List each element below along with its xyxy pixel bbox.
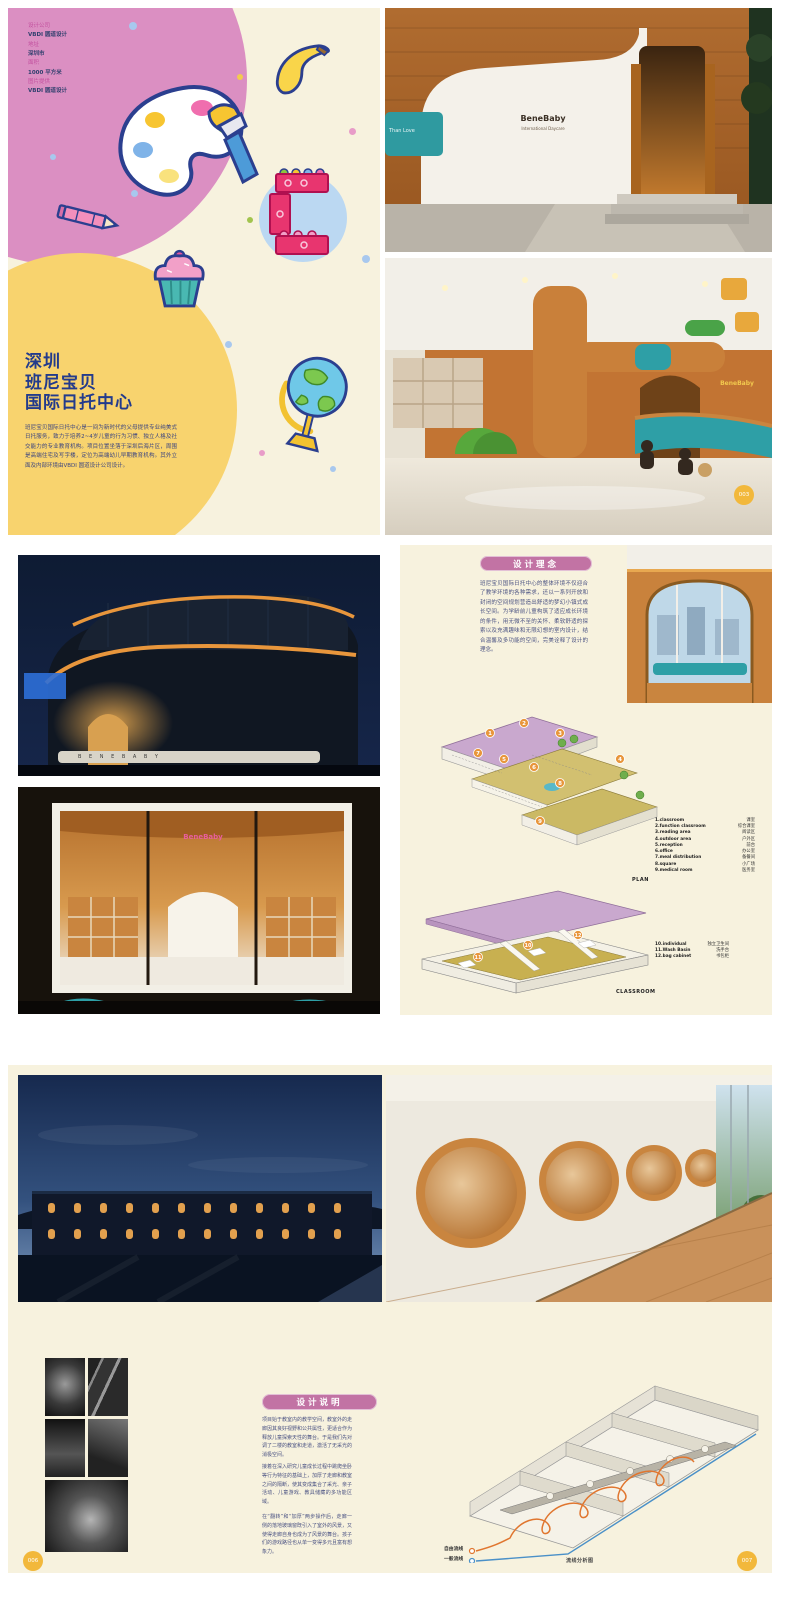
classroom-marker: 12	[575, 933, 582, 939]
night-exterior-illustration	[18, 555, 380, 776]
plan-marker: 6	[532, 765, 536, 771]
plan-marker: 1	[488, 731, 492, 737]
benebaby-wall-logo: BeneBaby	[707, 380, 767, 387]
blue-dot	[50, 154, 56, 160]
info-value: VBDI 圆道设计	[28, 87, 67, 96]
blue-dot	[330, 466, 336, 472]
blue-dot	[129, 22, 137, 30]
legend-en: 12.bag cabinet	[655, 954, 691, 960]
flow-legend-free: 自由流线	[444, 1548, 463, 1553]
plan-marker: 9	[538, 819, 542, 825]
classroom-marker: 10	[525, 943, 532, 949]
teal-wall-sign: Than Love	[389, 128, 439, 134]
design-concept-heading: 设计理念	[480, 556, 592, 571]
benebaby-base-letters: B E N E B A B Y	[78, 754, 308, 760]
bw-photo-stairwell	[88, 1419, 128, 1477]
benebaby-storefront-sign: BeneBaby	[168, 833, 238, 841]
plan-legend: 1.classroom课室 2.function classroom综合课室 3…	[655, 818, 755, 874]
plan-marker: 4	[618, 757, 622, 763]
classroom-axonometric-diagram: 10 11 12	[408, 885, 668, 1015]
photo-playroom-interior: BeneBaby	[385, 258, 772, 535]
title-line-3: 国际日托中心	[25, 393, 133, 414]
project-info-block: 设计公司 VBDI 圆道设计 地址 深圳市 面积 1000 平方米 图片提供 V…	[28, 22, 67, 97]
legend-en: 9.medical room	[655, 868, 692, 874]
plan-marker: 5	[502, 757, 506, 763]
spread1-left-page: 设计公司 VBDI 圆道设计 地址 深圳市 面积 1000 平方米 图片提供 V…	[8, 8, 380, 535]
circulation-axonometric-diagram	[440, 1358, 772, 1563]
design-concept-text: 班尼宝贝国际日托中心的整体环境不仅迎合了教学环境的各种需求，还以一系列开放和封闭…	[480, 580, 588, 656]
pencil-icon	[48, 196, 123, 244]
project-title: 深圳 班尼宝贝 国际日托中心	[25, 352, 133, 414]
photo-porthole-corridor	[386, 1075, 772, 1302]
pink-dot	[259, 450, 265, 456]
bw-photo-hallway-wide	[45, 1480, 128, 1552]
blue-dot	[362, 255, 370, 263]
cupcake-icon	[142, 246, 217, 312]
plan-marker: 2	[522, 721, 526, 727]
plan-marker: 8	[558, 781, 562, 787]
bw-photo-corridor	[45, 1419, 85, 1477]
info-label: 图片提供	[28, 78, 67, 87]
bw-photo-staircase	[88, 1358, 128, 1416]
info-label: 地址	[28, 41, 67, 50]
classroom-label: CLASSROOM	[616, 989, 656, 995]
flow-diagram-caption: 流线分析图	[566, 1557, 594, 1564]
arch-interior-illustration	[627, 545, 772, 703]
info-label: 设计公司	[28, 22, 67, 31]
lego-letter-c-icon	[248, 160, 353, 265]
photo-facade-exterior: BeneBaby International Daycare Than Love	[385, 8, 772, 252]
photo-night-exterior: B E N E B A B Y	[18, 555, 380, 776]
plan-marker: 3	[558, 731, 562, 737]
legend-row: 12.bag cabinet书包柜	[655, 954, 729, 960]
page-number-badge-right: 007	[737, 1551, 757, 1571]
storefront-illustration	[18, 787, 380, 1014]
description-paragraph-1: 项目始于教室内的教学空间，教室外的走廊因其良好视野和公共属性，更适合作为释放儿童…	[262, 1416, 352, 1460]
portfolio-canvas: 设计公司 VBDI 圆道设计 地址 深圳市 面积 1000 平方米 图片提供 V…	[0, 0, 790, 1614]
photo-arch-interior	[627, 545, 772, 703]
blue-dot	[225, 341, 232, 348]
info-value: 深圳市	[28, 50, 67, 59]
plan-marker: 7	[476, 751, 480, 757]
plan-axonometric-diagram: 1 2 3 4 5 6 7 8 9	[412, 695, 672, 885]
flow-legend-general: 一般流线	[444, 1558, 463, 1563]
photo-storefront: BeneBaby	[18, 787, 380, 1014]
bw-photo-dark-room	[45, 1358, 85, 1416]
benebaby-facade-sign-sub: International Daycare	[493, 126, 593, 131]
plan-label: PLAN	[632, 877, 649, 883]
info-value: VBDI 圆道设计	[28, 31, 67, 40]
page-number-badge-left: 006	[23, 1551, 43, 1571]
banana-icon	[270, 42, 345, 104]
legend-row: 9.medical room医务室	[655, 868, 755, 874]
photo-dusk-building	[18, 1075, 382, 1302]
page-number-badge: 003	[734, 485, 754, 505]
title-line-1: 深圳	[25, 352, 133, 373]
info-label: 面积	[28, 59, 67, 68]
description-paragraph-2: 接着在深入研究儿童成长过程中跳爬坐卧等行为特征的基础上，加厚了走廊和教室之间的隔…	[262, 1463, 352, 1507]
benebaby-facade-sign: BeneBaby	[503, 114, 583, 123]
project-intro-text: 班尼宝贝国际日托中心是一间为新时代的父母提供专业纯美式日托服务，致力于培养2~4…	[25, 424, 177, 471]
legend-cn: 医务室	[742, 868, 755, 874]
info-value: 1000 平方米	[28, 69, 67, 78]
porthole-corridor-illustration	[386, 1075, 772, 1302]
dusk-building-illustration	[18, 1075, 382, 1302]
playroom-illustration	[385, 258, 772, 535]
description-paragraph-3: 在“翻转”和“加厚”两步操作后，走廊一侧的落地玻璃窗既引入了室外的风景，又使得走…	[262, 1513, 352, 1557]
globe-icon	[272, 340, 357, 455]
classroom-legend: 10.individual独立卫生间 11.Wash Basin洗手台 12.b…	[655, 942, 729, 961]
legend-cn: 书包柜	[716, 954, 729, 960]
pink-dot	[349, 128, 356, 135]
title-line-2: 班尼宝贝	[25, 373, 133, 394]
paint-palette-icon	[105, 78, 265, 206]
classroom-marker: 11	[475, 955, 482, 961]
design-description-heading: 设计说明	[262, 1394, 377, 1410]
